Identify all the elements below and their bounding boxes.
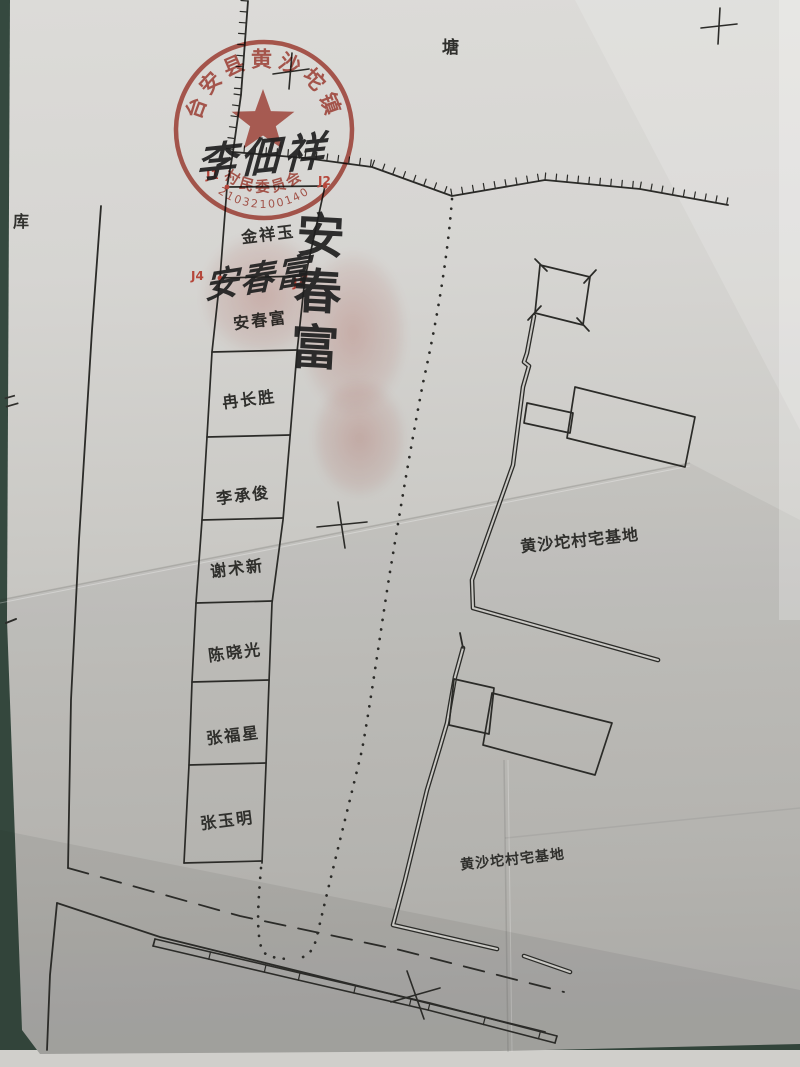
official-seal: 台安县黄沙坨镇 村民委员会 21032100140 (144, 10, 384, 250)
building-large-upper (567, 387, 695, 467)
reservoir-label: 库 (13, 208, 29, 232)
building-square (535, 265, 590, 325)
handwritten-signature-vertical: 安春富 (283, 209, 341, 401)
map-linework (0, 0, 800, 1067)
photographed-cadastral-map: 塘 库 二 黄沙坨村宅基地 黄沙坨村宅基地 金祥玉 安春富 冉长胜 李承俊 谢术… (0, 0, 800, 1067)
pond-label: 塘 (442, 33, 459, 58)
